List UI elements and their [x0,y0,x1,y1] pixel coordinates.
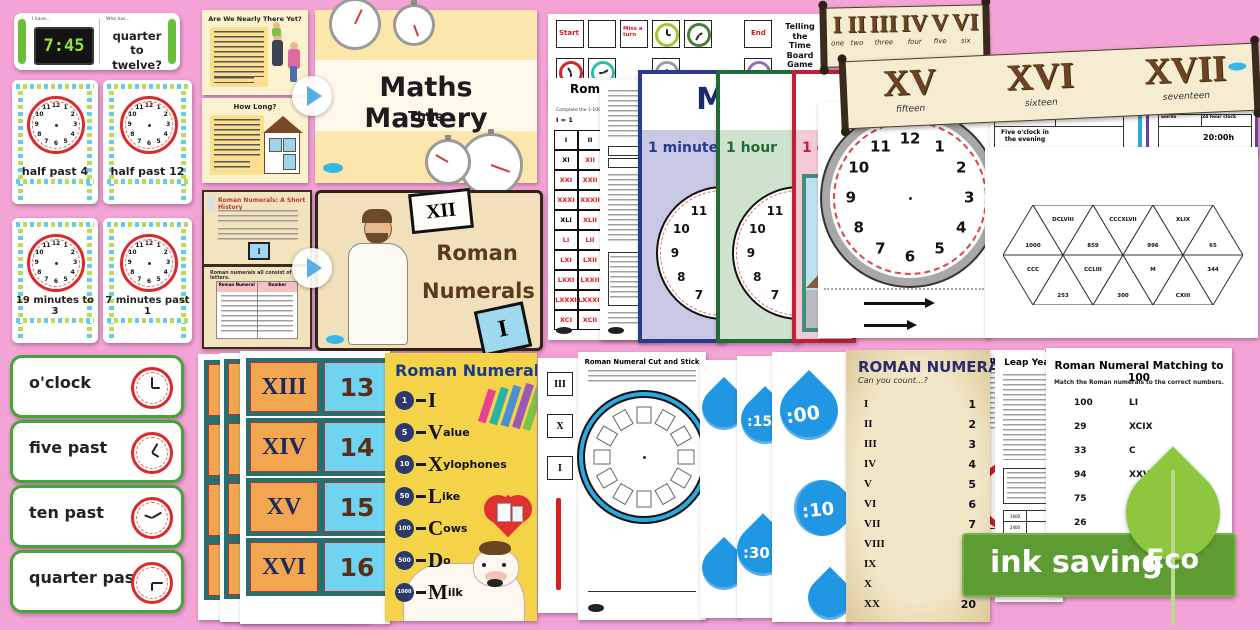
svg-text:DCLVIII: DCLVIII [1052,217,1074,223]
clock-face: 121234567891011 [27,96,85,154]
twinkl-logo [323,163,343,173]
svg-text:1000: 1000 [1025,243,1040,249]
board-game-end: End [751,29,766,37]
roman-numeral-grid: III XIXII XXIXXII XXXIXXXII XLIXLII LILI… [554,130,602,330]
clock-hand-cutout [864,324,908,327]
mnemonic-row: 1I [395,387,436,413]
poster-label: 1 hour [726,140,777,156]
flashcard-7-minutes-past-1: 121234567891011 7 minutes past 1 [103,218,192,343]
twinkl-logo [326,335,344,344]
clock-icon [131,497,173,539]
raindrop-cards-sheet-back [700,360,740,618]
presentation-title-line1: Roman [422,241,532,265]
raindrop-cards-sheet-front: :00 :10 [772,352,850,622]
svg-text:XLIX: XLIX [1176,217,1191,223]
twinkl-logo [487,579,503,587]
word-card-five-past: five past [10,420,184,483]
svg-text:M: M [1150,267,1155,273]
presentation-title-line2: Numerals [422,279,532,303]
svg-text:996: 996 [1147,243,1159,249]
numeral-tile: X [547,414,573,438]
clock-icon [131,562,173,604]
flashcard-19-minutes-to-3: 121234567891011 19 minutes to 3 [12,218,98,343]
stopwatch-icon [329,0,381,50]
who-has-label: Who has... [106,17,130,22]
tarsia-puzzle-sheet: 1000 DCLVIII 859 CCCXLVII 996 XLIX 65 CC… [985,147,1258,338]
poster-subtitle: Can you count...? [858,376,988,385]
tarsia-triangles: 1000 DCLVIII 859 CCCXLVII 996 XLIX 65 CC… [1003,205,1243,305]
worksheet-instructions: Match the Roman numerals to the correct … [1046,380,1232,386]
stopwatch-icon [425,139,471,185]
roman-card: XIV [246,418,322,476]
numeral-tile-XII: XII [408,188,474,234]
board-game-miss-a-turn: Miss a turn [623,26,647,38]
divider [99,19,100,64]
digital-clock: 7:45 [34,27,94,65]
svg-text:CCCXLVII: CCCXLVII [1109,217,1136,223]
maths-mastery-cover[interactable]: Maths Mastery Time [315,10,537,183]
presentation-subtitle: Time [315,110,537,125]
svg-text:65: 65 [1209,243,1217,249]
word-card-oclock: o'clock [10,355,184,418]
mnemonic-row: 10Xylophones [395,451,507,477]
clock-icon [131,367,173,409]
flashcard-caption: 19 minutes to 3 [12,295,98,317]
mnemonic-row: 5Value [395,419,470,445]
number-card: 16 [320,538,394,596]
twinkl-logo [608,327,624,334]
word-card-ten-past: ten past [10,485,184,548]
poster-1-hour: 1 hour 121234567891011 [716,70,800,343]
clock-hand-cutout [864,302,926,305]
poster-1-minute: M 1 minute 121234567891011 [638,70,726,343]
raindrop-cards-sheet-mid: :15 :30 [737,356,777,618]
flashcard-caption: 7 minutes past 1 [103,295,192,317]
roman-figure-icon [207,195,215,211]
board-game-start: Start [559,29,579,37]
roman-numerals-mnemonic-poster: Roman Numerals 1I 5Value 10Xylophones 50… [385,353,537,621]
eco-badge-label: Eco [1146,544,1199,575]
svg-text:CCLIII: CCLIII [1084,267,1102,273]
card-side-bar [18,19,26,64]
clock-icon [131,432,173,474]
svg-text:CXIII: CXIII [1176,293,1190,299]
matching-cards-sheet-front: XIII 13 XIV 14 XV 15 XVI 16 [240,351,390,624]
loop-card-question: quarter to twelve? [104,29,170,72]
clock-icon [655,23,679,47]
ink-saving-label: ink saving [990,545,1163,580]
number-card: 14 [320,418,394,476]
poster-title: Roman Numerals [395,361,537,380]
cut-stick-clock [583,396,705,518]
poster-title: ROMAN NUMERALS [858,358,1008,376]
clock-face: 121234567891011 [822,110,998,286]
clock-face: 121234567891011 [120,96,178,154]
time-24h-value: 20:00h [1203,133,1234,142]
resource-pack-preview: Start Miss a turn End Telling the Time B… [0,0,1260,630]
svg-text:300: 300 [1117,293,1129,299]
cut-line [824,288,984,290]
svg-text:859: 859 [1087,243,1099,249]
svg-text:344: 344 [1207,267,1219,273]
board-game-title: Telling the [780,22,820,41]
clock-cutout-sheet: 121234567891011 [818,102,990,338]
svg-text:CCC: CCC [1027,267,1039,273]
word-card-quarter-past: quarter past [10,550,184,613]
twinkl-logo [556,327,572,334]
svg-text:253: 253 [1057,293,1069,299]
poster-label: 1 minute [648,140,718,156]
roman-numerals-cover[interactable]: XII Roman Numerals I [315,190,543,351]
number-card: 15 [320,478,394,536]
worksheet-title: Roman Numeral Cut and Stick [578,358,706,366]
roman-card: XV [246,478,322,536]
clock-face: 121234567891011 [120,234,178,292]
stopwatch-icon [393,4,435,46]
mnemonic-row: 100Cows [395,515,467,541]
twinkl-logo [1228,62,1246,71]
clock-face: 121234567891011 [27,234,85,292]
numeral-tile: III [547,372,573,396]
flashcard-caption: half past 4 [12,165,98,178]
clock-hand-cutout [556,498,561,590]
play-button-roman-numerals[interactable] [292,248,332,288]
mnemonic-row: 50Like [395,483,460,509]
mnemonic-row: 1000Milk [395,579,463,605]
flashcard-half-past-12: 121234567891011 half past 12 [103,80,192,204]
number-card: 13 [320,358,394,416]
time-in-words: Five o'clock in the evening [997,129,1053,143]
play-button-maths-mastery[interactable] [292,76,332,116]
slide-how-long: How Long? [202,98,308,183]
mnemonic-row: 500Do [395,547,451,573]
i-have-label: I have... [32,17,50,22]
loop-card: I have... 7:45 Who has... quarter to twe… [14,13,180,70]
numeral-tile-I: I [474,301,532,356]
cut-stick-numerals-strip: III X I [538,358,582,613]
roman-card: XIII [246,358,322,416]
flashcard-caption: half past 12 [103,165,192,178]
roman-card: XVI [246,538,322,596]
slide-are-we-nearly-there-yet: Are We Nearly There Yet? [202,10,308,95]
clock-icon [687,23,711,47]
twinkl-logo [588,604,604,612]
numeral-tile: I [547,456,573,480]
numeral-tile-I: ​I [248,242,270,260]
cut-stick-worksheet: Roman Numeral Cut and Stick [578,352,706,620]
flashcard-half-past-4: 121234567891011 half past 4 [12,80,98,204]
